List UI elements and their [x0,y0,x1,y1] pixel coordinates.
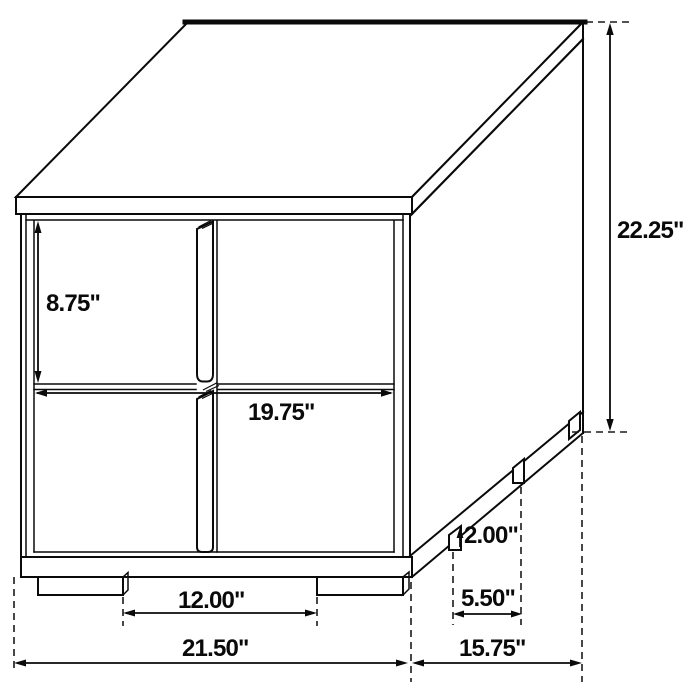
top-drawer-height-label: 8.75" [46,290,100,317]
arrowhead-up [606,23,613,35]
side-rear-leg [513,459,524,483]
nightstand-outline [16,22,585,595]
top-drawer-handle [197,221,213,382]
front-left-leg [38,573,128,596]
overall-width-label: 21.50" [182,635,249,662]
side-leg-spacing-label: 5.50" [461,585,515,612]
arrowhead-right [396,660,408,667]
dimension-overall-width: 21.50" [14,635,408,667]
dimension-top-drawer-height: 8.75" [35,221,101,383]
arrowhead-right [305,610,317,617]
side-base-bottom-edge [412,433,583,577]
dimension-overall-height: 22.25" [606,23,683,431]
arrowhead-left [35,389,47,396]
arrowhead-left [123,610,135,617]
arrowhead-up [35,221,42,233]
dimension-side-leg-spacing: 5.50" [453,585,522,618]
front-right-leg [317,572,409,595]
top-panel-front-edge [16,197,412,214]
leg-height-label: 2.00" [464,522,518,549]
arrowhead-right [381,389,393,396]
dimension-overall-depth: 15.75" [412,635,582,667]
overall-depth-label: 15.75" [459,635,526,662]
arrowhead-down [35,371,42,383]
arrowhead-left [14,660,26,667]
dimension-leg-height: 2.00" [457,522,518,549]
arrowhead-left [412,660,424,667]
drawer-width-label: 19.75" [248,399,315,426]
front-leg-spacing-label: 12.00" [178,587,245,614]
arrowhead-right [570,660,582,667]
dimension-diagram: 8.75" 19.75" 22.25" 2.00" 5.50" 12.00" [0,0,700,700]
arrowhead-down [606,419,613,431]
bottom-drawer-handle [197,383,219,553]
overall-height-label: 22.25" [617,217,684,244]
back-corner-leg [569,412,580,439]
nightstand-drawing-svg: 8.75" 19.75" 22.25" 2.00" 5.50" 12.00" [0,0,700,700]
dimension-front-leg-spacing: 12.00" [123,587,317,617]
